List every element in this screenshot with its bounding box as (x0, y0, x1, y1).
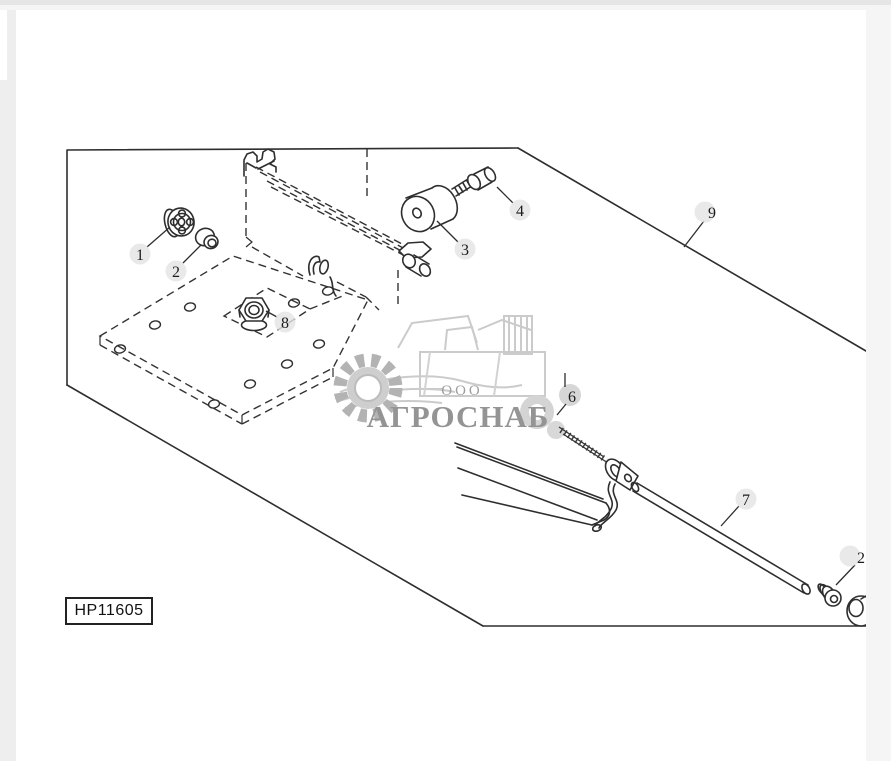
clamp-part (592, 456, 638, 533)
callout-9: 9 (684, 202, 716, 248)
bolt-part (452, 166, 498, 196)
callout-2: 2 (166, 245, 202, 282)
watermark-company-name: АГРОСНАБ (367, 399, 550, 434)
callouts: 1 2 3 4 6 7 8 (130, 187, 866, 585)
svg-text:4: 4 (516, 203, 524, 220)
flat-bar-part (455, 443, 610, 525)
mounting-plate-dashed (100, 256, 368, 424)
parts-catalog-page: ООО АГРОСНАБ (0, 0, 891, 761)
rail-bracket-right (399, 242, 433, 278)
page-top-strip-light (0, 5, 891, 10)
svg-text:6: 6 (568, 389, 576, 406)
svg-text:8: 8 (281, 315, 289, 332)
plate-holes (114, 286, 334, 409)
svg-text:7: 7 (742, 492, 750, 509)
nut-part (239, 298, 269, 331)
callout-7: 7 (721, 489, 757, 527)
page-right-strip (866, 10, 891, 761)
svg-text:2: 2 (172, 264, 180, 281)
drawing-number-label: HP11605 (65, 597, 153, 625)
svg-text:9: 9 (708, 205, 716, 222)
isolator-cylinder-part (395, 186, 457, 238)
page-left-tab (0, 10, 7, 80)
svg-text:1: 1 (136, 247, 144, 264)
callout-1: 1 (130, 227, 171, 265)
grommet-part (817, 583, 841, 606)
support-panel-dashed (246, 149, 415, 310)
callout-8: 8 (266, 311, 296, 333)
knob-part (162, 205, 197, 238)
watermark-org-type: ООО (441, 383, 483, 399)
page-left-strip (0, 10, 16, 761)
diagram-canvas: ООО АГРОСНАБ (0, 0, 891, 761)
rail-bracket-left (244, 149, 276, 176)
svg-text:3: 3 (461, 242, 469, 259)
callout-4: 4 (497, 187, 531, 221)
callout-3: 3 (437, 221, 476, 260)
threaded-shaft-part (559, 427, 608, 463)
drawing-number-text: HP11605 (74, 602, 143, 620)
bushing-part (193, 226, 220, 251)
svg-text:2: 2 (857, 550, 865, 567)
watermark: ООО АГРОСНАБ (340, 316, 581, 439)
callout-2-right: 2 (836, 546, 865, 586)
rod-part (630, 481, 812, 595)
